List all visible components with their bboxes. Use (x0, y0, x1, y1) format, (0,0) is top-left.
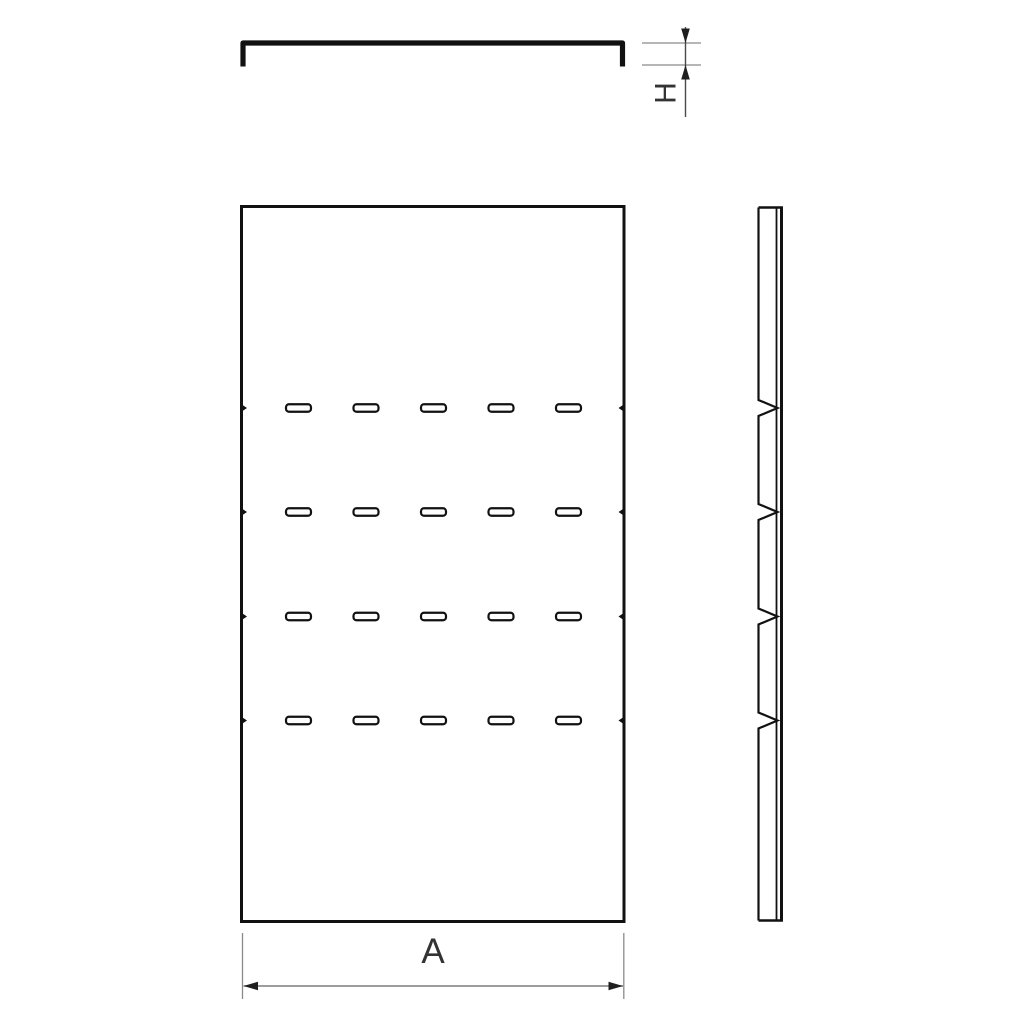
width-dimension-label: A (421, 932, 445, 971)
arrow-up-icon (681, 65, 690, 80)
arrow-right-icon (609, 982, 624, 991)
width-dimension: A (243, 932, 624, 999)
notch-tick-left (240, 612, 247, 621)
slot (489, 508, 514, 516)
slot (286, 508, 311, 516)
technical-drawing-canvas: H (0, 0, 1024, 1024)
profile-view (243, 43, 623, 67)
slot (421, 508, 446, 516)
notch-tick-left (240, 716, 247, 725)
height-dimension: H (642, 27, 701, 117)
slot (556, 613, 581, 621)
slot (421, 404, 446, 412)
slot (489, 404, 514, 412)
drawing-svg: H (0, 0, 1024, 1024)
slot (421, 613, 446, 621)
slot (354, 508, 379, 516)
side-notched-edge (759, 208, 778, 921)
slot (354, 613, 379, 621)
notch-tick-right (619, 612, 626, 621)
slot (489, 717, 514, 725)
slot-grid (286, 404, 581, 724)
slot (489, 613, 514, 621)
arrow-down-icon (681, 29, 690, 44)
arrow-left-icon (244, 982, 259, 991)
slot (286, 404, 311, 412)
cover-plate-outline (242, 207, 625, 922)
edge-notch-ticks (240, 404, 625, 726)
profile-outline (243, 43, 623, 67)
height-dimension-label: H (650, 82, 683, 104)
slot (556, 508, 581, 516)
notch-tick-right (619, 404, 626, 413)
slot (354, 404, 379, 412)
slot (556, 717, 581, 725)
slot (556, 404, 581, 412)
notch-tick-right (619, 716, 626, 725)
side-view (759, 207, 784, 922)
notch-tick-left (240, 404, 247, 413)
slot (354, 717, 379, 725)
notch-tick-right (619, 508, 626, 517)
slot (286, 613, 311, 621)
slot (421, 717, 446, 725)
notch-tick-left (240, 508, 247, 517)
slot (286, 717, 311, 725)
plan-view (240, 207, 625, 922)
